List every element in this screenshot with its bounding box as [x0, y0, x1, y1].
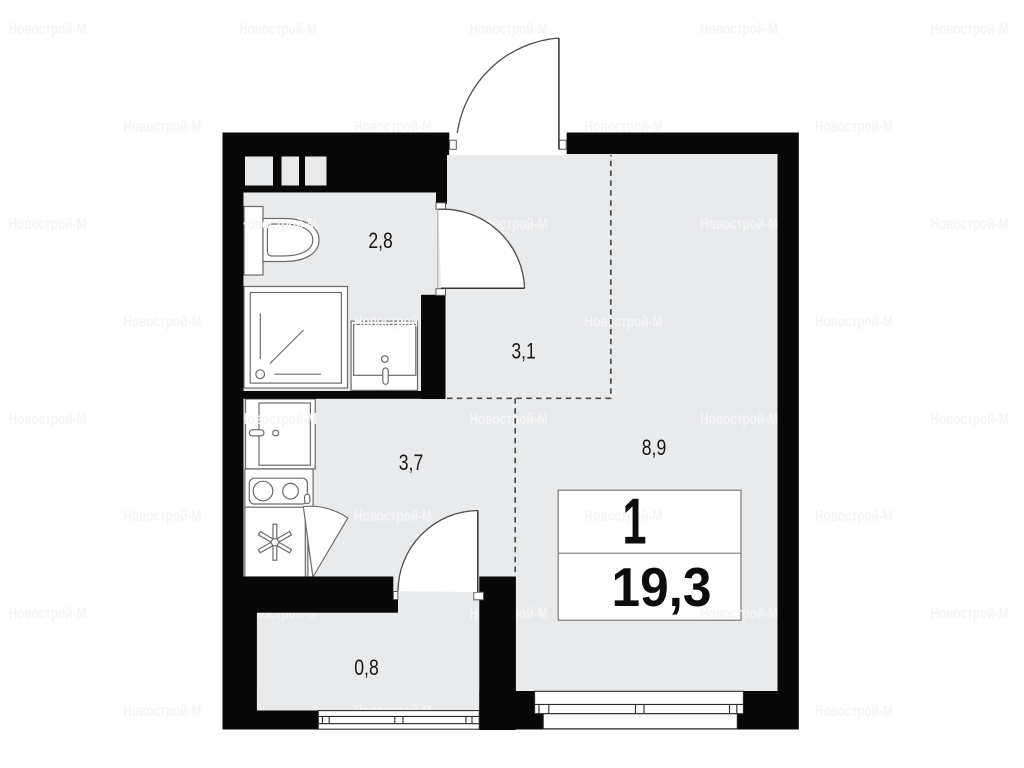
- svg-text:Новострой-М: Новострой-М: [815, 508, 893, 525]
- svg-text:Новострой-М: Новострой-М: [931, 216, 1009, 233]
- svg-text:Новострой-М: Новострой-М: [9, 411, 87, 428]
- svg-text:Новострой-М: Новострой-М: [700, 606, 778, 623]
- svg-text:Новострой-М: Новострой-М: [931, 21, 1009, 38]
- svg-text:Новострой-М: Новострой-М: [123, 313, 201, 330]
- svg-text:2,8: 2,8: [368, 228, 393, 253]
- svg-text:Новострой-М: Новострой-М: [931, 606, 1009, 623]
- svg-text:1: 1: [623, 485, 647, 558]
- svg-text:Новострой-М: Новострой-М: [700, 411, 778, 428]
- svg-text:Новострой-М: Новострой-М: [239, 21, 317, 38]
- svg-text:Новострой-М: Новострой-М: [239, 411, 317, 428]
- svg-text:Новострой-М: Новострой-М: [931, 411, 1009, 428]
- svg-text:0,8: 0,8: [354, 655, 379, 680]
- svg-text:19,3: 19,3: [612, 557, 712, 618]
- svg-text:3,7: 3,7: [399, 450, 424, 475]
- svg-text:Новострой-М: Новострой-М: [9, 216, 87, 233]
- svg-text:Новострой-М: Новострой-М: [9, 21, 87, 38]
- svg-text:Новострой-М: Новострой-М: [700, 216, 778, 233]
- svg-text:Новострой-М: Новострой-М: [123, 119, 201, 136]
- svg-text:8,9: 8,9: [642, 435, 667, 460]
- svg-text:Новострой-М: Новострой-М: [470, 411, 548, 428]
- svg-text:Новострой-М: Новострой-М: [815, 119, 893, 136]
- svg-text:Новострой-М: Новострой-М: [9, 606, 87, 623]
- svg-text:Новострой-М: Новострой-М: [470, 21, 548, 38]
- svg-text:Новострой-М: Новострой-М: [354, 508, 432, 525]
- svg-text:3,1: 3,1: [511, 339, 536, 364]
- svg-text:Новострой-М: Новострой-М: [123, 508, 201, 525]
- svg-text:Новострой-М: Новострой-М: [123, 703, 201, 720]
- svg-text:Новострой-М: Новострой-М: [700, 21, 778, 38]
- svg-text:Новострой-М: Новострой-М: [584, 313, 662, 330]
- svg-text:Новострой-М: Новострой-М: [354, 313, 432, 330]
- svg-text:Новострой-М: Новострой-М: [815, 703, 893, 720]
- svg-text:Новострой-М: Новострой-М: [239, 216, 317, 233]
- svg-text:Новострой-М: Новострой-М: [815, 313, 893, 330]
